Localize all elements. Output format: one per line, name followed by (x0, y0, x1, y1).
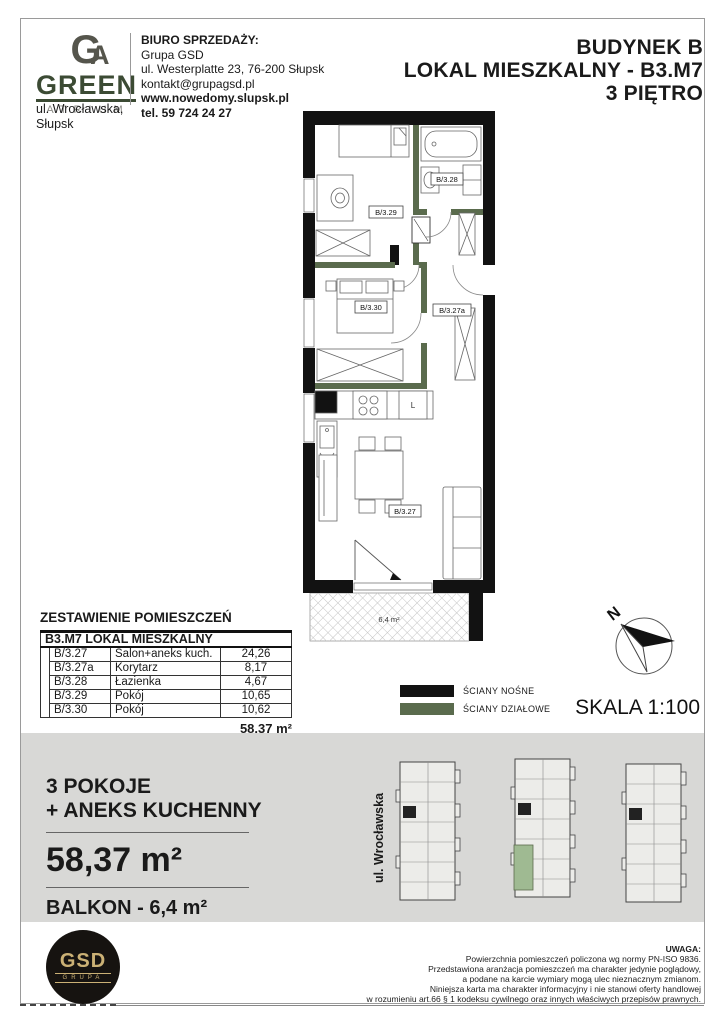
cut-line (116, 1005, 704, 1006)
unit-title-block: BUDYNEK B LOKAL MIESZKALNY - B3.M7 3 PIĘ… (404, 36, 703, 105)
load-bearing-swatch (400, 685, 454, 697)
building-title: BUDYNEK B (404, 36, 703, 59)
scale-label: SKALA 1:100 (540, 696, 700, 720)
room-code: B/3.27 (50, 647, 111, 662)
table-gutter (41, 647, 50, 718)
load-bearing-label: ŚCIANY NOŚNE (463, 686, 534, 696)
wall-legend: ŚCIANY NOŚNE ŚCIANY DZIAŁOWE (400, 684, 550, 720)
rooms-count: 3 POKOJE (46, 775, 262, 799)
table-row: B/3.29 Pokój 10,65 (41, 690, 292, 704)
brand-address: ul. Wrocławska, Słupsk (36, 102, 123, 132)
table-row: B/3.30 Pokój 10,62 (41, 704, 292, 718)
room-schedule-table: B3.M7 LOKAL MIESZKALNY B/3.27 Salon+anek… (40, 630, 292, 718)
desk-chair-icon (317, 175, 353, 221)
sofa-icon (443, 487, 481, 579)
room-code: B/3.30 (50, 704, 111, 718)
room-area: 4,67 (221, 676, 292, 690)
table-row: B/3.28 Łazienka 4,67 (41, 676, 292, 690)
room-name: Pokój (111, 690, 221, 704)
floor-title: 3 PIĘTRO (404, 82, 703, 105)
sales-office-email: kontakt@grupagsd.pl (141, 77, 324, 92)
room-area: 10,65 (221, 690, 292, 704)
street-label: ul. Wrocławska (372, 778, 386, 898)
summary-panel: 3 POKOJE + ANEKS KUCHENNY 58,37 m² BALKO… (21, 733, 704, 922)
wardrobe-icon (317, 349, 403, 381)
highlighted-unit (514, 845, 533, 890)
room-name: Pokój (111, 704, 221, 718)
legend-row: ŚCIANY DZIAŁOWE (400, 702, 550, 715)
table-row: B/3.27a Korytarz 8,17 (41, 662, 292, 676)
corridor-wardrobe-icons (455, 213, 475, 380)
room-code: B/3.29 (50, 690, 111, 704)
gsd-logo: GSD GRUPA (46, 930, 120, 1004)
legal-note-line: w rozumieniu art.66 § 1 kodeksu cywilneg… (271, 994, 701, 1004)
apartment-card-page: G A GREEN ATRIUM ul. Wrocławska, Słupsk … (0, 0, 724, 1024)
summary-divider (46, 832, 249, 833)
balcony-door-icon (355, 540, 401, 580)
partition-swatch (400, 703, 454, 715)
shelf-icon (319, 455, 337, 521)
balcony-area: BALKON - 6,4 m² (46, 897, 262, 920)
kitchen-annex: + ANEKS KUCHENNY (46, 799, 262, 823)
room-name: Korytarz (111, 662, 221, 676)
wardrobe-icon (316, 230, 370, 256)
room-label: B/3.27a (439, 306, 466, 315)
monogram-a: A (90, 40, 110, 71)
room-name: Salon+aneks kuch. (111, 647, 221, 662)
balcony: 6,4 m² (310, 593, 483, 641)
room-name: Łazienka (111, 676, 221, 690)
room-label: B/3.28 (436, 175, 458, 184)
table-row: B/3.27 Salon+aneks kuch. 24,26 (41, 647, 292, 662)
partition-label: ŚCIANY DZIAŁOWE (463, 704, 550, 714)
dining-table-icon (355, 437, 403, 513)
room-label: B/3.29 (375, 208, 397, 217)
brand-address-line2: Słupsk (36, 117, 123, 132)
bed-single-icon (339, 125, 409, 157)
bath-cabinet-icon (463, 165, 481, 195)
gsd-logo-subtext: GRUPA (55, 973, 111, 983)
legal-note-line: Przedstawiona aranżacja pomieszczeń ma c… (271, 964, 701, 974)
legend-row: ŚCIANY NOŚNE (400, 684, 550, 697)
room-schedule-title: ZESTAWIENIE POMIESZCZEŃ (40, 610, 292, 625)
room-code: B/3.27a (50, 662, 111, 676)
legal-note-line: Niniejsza karta ma charakter informacyjn… (271, 984, 701, 994)
room-schedule: ZESTAWIENIE POMIESZCZEŃ B3.M7 LOKAL MIES… (40, 610, 292, 736)
gsd-logo-text: GSD (60, 951, 106, 971)
floor-plan: 6,4 m² (293, 103, 505, 648)
legal-note-line: Powierzchnia pomieszczeń policzona wg no… (271, 954, 701, 964)
sales-office-street: ul. Westerplatte 23, 76-200 Słupsk (141, 62, 324, 77)
fridge-label: L (411, 401, 416, 410)
summary-divider (46, 887, 249, 888)
table-header: B3.M7 LOKAL MIESZKALNY (41, 632, 292, 648)
unit-title: LOKAL MIESZKALNY - B3.M7 (404, 59, 703, 82)
sales-office-title: BIURO SPRZEDAŻY: (141, 33, 324, 48)
kitchen-counter-icon (315, 391, 433, 419)
brand-name: GREEN (36, 72, 136, 102)
total-area-large: 58,37 m² (46, 842, 262, 878)
room-label: B/3.30 (360, 303, 382, 312)
table-header-row: B3.M7 LOKAL MIESZKALNY (41, 632, 292, 648)
room-area: 24,26 (221, 647, 292, 662)
room-code: B/3.28 (50, 676, 111, 690)
mini-floor-plan-3 (622, 764, 686, 902)
summary-block: 3 POKOJE + ANEKS KUCHENNY 58,37 m² BALKO… (46, 775, 262, 920)
balcony-area-label: 6,4 m² (378, 615, 400, 624)
room-area: 8,17 (221, 662, 292, 676)
legal-note: UWAGA: Powierzchnia pomieszczeń policzon… (271, 944, 701, 1004)
header-divider (130, 33, 131, 105)
north-label: N (605, 604, 625, 625)
legal-note-title: UWAGA: (271, 944, 701, 954)
room-area: 10,62 (221, 704, 292, 718)
ga-monogram-icon: G A (36, 28, 136, 72)
room-label: B/3.27 (394, 507, 416, 516)
sales-office-company: Grupa GSD (141, 48, 324, 63)
north-compass-icon: N (596, 596, 688, 688)
building-overview-plans (391, 757, 701, 917)
bathtub-icon (421, 127, 481, 161)
cut-line-dashed (20, 1004, 116, 1006)
mini-floor-plan-1 (396, 762, 460, 900)
brand-address-line1: ul. Wrocławska, (36, 102, 123, 117)
legal-note-line: a podane na karcie wymiary mogą ulec nie… (271, 974, 701, 984)
